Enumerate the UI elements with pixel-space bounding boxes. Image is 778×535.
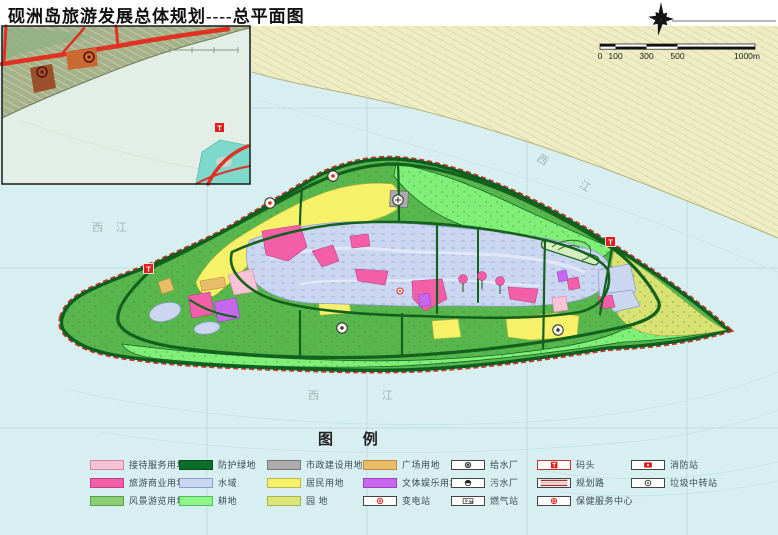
inset-locator-map: T [2,26,250,184]
river-label-south: 西 江 [308,389,423,402]
svg-text:100: 100 [608,51,622,61]
plan-map-page: T T 西 江 西 江 西 江 [0,0,778,535]
svg-text:T: T [608,238,613,247]
wharf-marker-west: T [144,264,154,274]
svg-text:1000m: 1000m [734,51,760,61]
svg-text:T: T [217,124,222,133]
wharf-marker-east: T [606,237,616,247]
svg-text:500: 500 [670,51,684,61]
scale-bar: 0 100 300 500 1000m [598,44,760,61]
inset-parcel [30,64,56,93]
master-plan-map: T T 西 江 西 江 西 江 [0,0,778,535]
page-title: 砚洲岛旅游发展总体规划----总平面图 [8,2,305,27]
river-label-west: 西 江 [92,221,132,234]
inset-wharf-marker: T [215,123,225,133]
svg-text:0: 0 [598,51,603,61]
svg-text:300: 300 [639,51,653,61]
svg-text:T: T [146,265,151,274]
